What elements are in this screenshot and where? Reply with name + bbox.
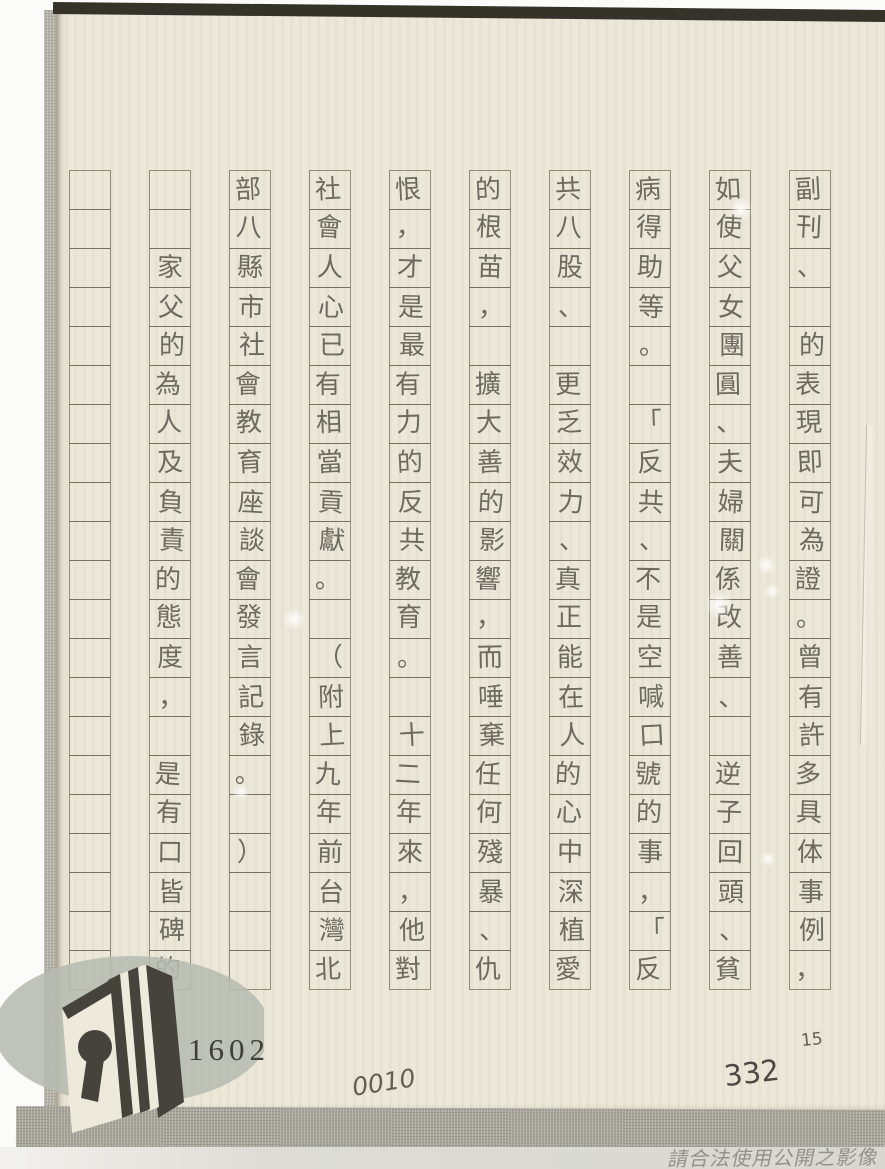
grid-cell: 任 bbox=[469, 755, 511, 795]
grid-cell: 有 bbox=[149, 794, 191, 834]
handwritten-character: 心 bbox=[318, 295, 344, 321]
grid-cell bbox=[69, 404, 111, 444]
grid-cell bbox=[149, 170, 191, 210]
handwritten-character: 發 bbox=[236, 605, 262, 631]
handwritten-character: 股 bbox=[557, 255, 584, 282]
grid-cell: ， bbox=[469, 599, 511, 639]
grid-cell: 前 bbox=[309, 833, 351, 873]
grid-cell: 共 bbox=[549, 170, 591, 210]
grid-cell: 体 bbox=[789, 833, 831, 873]
handwritten-character: 有 bbox=[315, 372, 341, 398]
handwritten-character: 現 bbox=[796, 410, 823, 437]
handwritten-character: （ bbox=[317, 645, 343, 671]
grid-cell: 、 bbox=[629, 521, 671, 561]
text-column: 社會人心已有相當貢獻。（附上九年前台灣北 bbox=[309, 170, 351, 990]
grid-cell: 、 bbox=[709, 404, 751, 444]
handwritten-character: 會 bbox=[315, 214, 342, 241]
grid-cell: 善 bbox=[709, 638, 751, 678]
handwritten-character: 事 bbox=[637, 840, 663, 866]
grid-cell: 更 bbox=[549, 365, 591, 405]
grid-cell: 十 bbox=[389, 716, 431, 756]
handwritten-character: 回 bbox=[717, 840, 743, 866]
grid-cell: 的 bbox=[149, 560, 191, 600]
grid-cell bbox=[709, 716, 751, 756]
handwritten-character: 關 bbox=[719, 528, 746, 555]
grid-cell: 許 bbox=[789, 716, 831, 756]
handwritten-character: 社 bbox=[314, 176, 341, 203]
handwritten-character: 市 bbox=[238, 295, 264, 321]
handwritten-character: 的 bbox=[799, 333, 825, 359]
grid-cell: 是 bbox=[389, 287, 431, 327]
grid-cell: ） bbox=[229, 833, 271, 873]
grid-cell: 台 bbox=[309, 872, 351, 912]
handwritten-character: 恨 bbox=[394, 176, 421, 203]
grid-cell: 逆 bbox=[709, 755, 751, 795]
handwritten-character: 婦 bbox=[717, 489, 744, 516]
grid-cell: 回 bbox=[709, 833, 751, 873]
handwritten-character: 效 bbox=[556, 449, 583, 476]
handwritten-character: 能 bbox=[557, 645, 583, 671]
grid-cell: 在 bbox=[549, 677, 591, 717]
handwritten-character: 反 bbox=[636, 449, 663, 476]
handwritten-character: 證 bbox=[795, 567, 821, 593]
grid-cell: 圓 bbox=[709, 365, 751, 405]
text-column: 病得助等。「反共、不是空喊口號的事，「反 bbox=[629, 170, 671, 990]
grid-cell bbox=[69, 755, 111, 795]
printed-number: 1602 bbox=[188, 1032, 270, 1068]
handwritten-character: 是 bbox=[636, 605, 662, 631]
grid-cell bbox=[69, 833, 111, 873]
handwritten-character: 的 bbox=[396, 449, 423, 476]
grid-cell: 乏 bbox=[549, 404, 591, 444]
handwritten-character: 得 bbox=[635, 214, 662, 241]
handwritten-character: 影 bbox=[479, 528, 506, 555]
handwritten-character: 暴 bbox=[478, 880, 504, 906]
grid-cell: 為 bbox=[789, 521, 831, 561]
grid-cell: 記 bbox=[229, 677, 271, 717]
grid-cell: 暴 bbox=[469, 872, 511, 912]
handwritten-character: 北 bbox=[315, 957, 342, 984]
grid-cell bbox=[69, 443, 111, 483]
grid-cell bbox=[309, 599, 351, 639]
handwritten-character: 根 bbox=[475, 214, 502, 241]
handwritten-character: 八 bbox=[555, 214, 582, 241]
handwritten-character: 植 bbox=[559, 918, 585, 944]
grid-cell: 社 bbox=[229, 326, 271, 366]
handwritten-character: 「 bbox=[639, 918, 665, 944]
handwritten-character: 表 bbox=[795, 372, 821, 398]
grid-cell: 有 bbox=[789, 677, 831, 717]
grid-cell: 中 bbox=[549, 833, 591, 873]
grid-cell: 愛 bbox=[549, 950, 591, 990]
handwritten-character: 仇 bbox=[475, 957, 502, 984]
handwritten-character: 八 bbox=[235, 214, 262, 241]
grid-cell: 何 bbox=[469, 794, 511, 834]
grid-cell: ， bbox=[149, 677, 191, 717]
text-column: 部八縣市社會教育座談會發言記錄。） bbox=[229, 170, 271, 990]
grid-cell bbox=[69, 326, 111, 366]
handwritten-character: 的 bbox=[636, 800, 663, 827]
handwritten-character: 乏 bbox=[556, 410, 583, 437]
grid-cell: 曾 bbox=[789, 638, 831, 678]
handwritten-character: 年 bbox=[316, 800, 343, 827]
text-column: 副刊、的表現即可為證。曾有許多具体事例， bbox=[789, 170, 831, 990]
grid-cell: 負 bbox=[149, 482, 191, 522]
grid-cell: 言 bbox=[229, 638, 271, 678]
grid-cell: 碑 bbox=[149, 911, 191, 951]
grid-cell: 「 bbox=[629, 911, 671, 951]
handwritten-character: 會 bbox=[235, 372, 261, 398]
grid-cell: 心 bbox=[309, 287, 351, 327]
handwritten-character: 「 bbox=[636, 410, 663, 437]
handwritten-character: 態 bbox=[156, 605, 182, 631]
grid-cell bbox=[789, 287, 831, 327]
grid-cell: 錄 bbox=[229, 716, 271, 756]
handwritten-character: 的 bbox=[474, 176, 501, 203]
handwritten-character: 反 bbox=[635, 957, 662, 984]
grid-cell: 、 bbox=[709, 677, 751, 717]
handwritten-character: 力 bbox=[396, 410, 423, 437]
grid-cell: 皆 bbox=[149, 872, 191, 912]
handwritten-character: 教 bbox=[236, 410, 263, 437]
grid-cell: 當 bbox=[309, 443, 351, 483]
grid-cell: 的 bbox=[629, 794, 671, 834]
handwritten-character: 二 bbox=[394, 761, 421, 788]
grid-cell: 及 bbox=[149, 443, 191, 483]
grid-cell: 談 bbox=[229, 521, 271, 561]
grid-cell: 反 bbox=[629, 443, 671, 483]
handwritten-character: 團 bbox=[719, 333, 745, 359]
grid-cell bbox=[69, 560, 111, 600]
handwritten-character: 為 bbox=[155, 372, 181, 398]
grid-cell: 善 bbox=[469, 443, 511, 483]
handwritten-character: 責 bbox=[159, 528, 186, 555]
handwritten-character: 、 bbox=[718, 685, 745, 712]
grid-cell: 女 bbox=[709, 287, 751, 327]
handwritten-character: 何 bbox=[476, 800, 503, 827]
grid-cell: 縣 bbox=[229, 248, 271, 288]
paper-stain bbox=[232, 784, 250, 800]
grid-cell: 效 bbox=[549, 443, 591, 483]
handwritten-character: 、 bbox=[479, 918, 505, 944]
grid-cell: ， bbox=[389, 209, 431, 249]
grid-cell bbox=[69, 638, 111, 678]
handwritten-character: 有 bbox=[798, 685, 825, 712]
handwritten-character: ， bbox=[158, 685, 185, 712]
grid-cell: 家 bbox=[149, 248, 191, 288]
grid-cell: 。 bbox=[389, 638, 431, 678]
grid-cell: 北 bbox=[309, 950, 351, 990]
grid-cell: 反 bbox=[389, 482, 431, 522]
grid-cell bbox=[149, 716, 191, 756]
handwritten-character: 善 bbox=[717, 645, 743, 671]
grid-cell: （ bbox=[309, 638, 351, 678]
handwritten-character: 力 bbox=[557, 489, 584, 516]
handwritten-character: 是 bbox=[154, 761, 181, 788]
grid-cell: 病 bbox=[629, 170, 671, 210]
grid-cell: 大 bbox=[469, 404, 511, 444]
handwritten-character: 縣 bbox=[237, 255, 264, 282]
handwritten-character: 年 bbox=[396, 800, 423, 827]
handwritten-character: 。 bbox=[639, 333, 665, 359]
handwritten-character: 度 bbox=[157, 645, 183, 671]
handwritten-character: 真 bbox=[555, 567, 581, 593]
handwritten-character: 係 bbox=[715, 567, 741, 593]
handwritten-character: 的 bbox=[159, 333, 185, 359]
handwritten-character: 。 bbox=[315, 567, 341, 593]
grid-cell: 空 bbox=[629, 638, 671, 678]
handwritten-character: 貢 bbox=[317, 489, 344, 516]
grid-cell: 人 bbox=[149, 404, 191, 444]
handwritten-character: 深 bbox=[558, 880, 584, 906]
grid-cell: 社 bbox=[309, 170, 351, 210]
handwritten-character: 例 bbox=[799, 918, 825, 944]
paper-stain bbox=[760, 852, 776, 866]
grid-cell: 最 bbox=[389, 326, 431, 366]
grid-cell: 苗 bbox=[469, 248, 511, 288]
handwritten-character: 談 bbox=[239, 528, 266, 555]
handwritten-character: 体 bbox=[797, 840, 823, 866]
handwritten-character: 碑 bbox=[159, 918, 185, 944]
handwritten-character: 錄 bbox=[238, 722, 265, 749]
grid-cell: 殘 bbox=[469, 833, 511, 873]
handwritten-character: 號 bbox=[634, 761, 661, 788]
handwritten-character: 夫 bbox=[716, 449, 743, 476]
grid-cell: 、 bbox=[469, 911, 511, 951]
handwritten-character: 父 bbox=[158, 295, 184, 321]
handwritten-character: 家 bbox=[157, 255, 184, 282]
handwritten-character: ， bbox=[395, 214, 422, 241]
handwritten-character: 圓 bbox=[715, 372, 741, 398]
grid-cell bbox=[69, 248, 111, 288]
handwritten-character: 、 bbox=[559, 528, 586, 555]
handwritten-number-corner: 332 bbox=[722, 1053, 781, 1093]
paper-stain bbox=[764, 584, 780, 598]
handwritten-character: 的 bbox=[554, 761, 581, 788]
grid-cell: 的 bbox=[469, 482, 511, 522]
grid-cell: 座 bbox=[229, 482, 271, 522]
grid-cell: 的 bbox=[149, 326, 191, 366]
handwritten-character: 反 bbox=[397, 489, 424, 516]
handwritten-character: 台 bbox=[318, 880, 344, 906]
grid-cell: 父 bbox=[709, 248, 751, 288]
text-column: 恨，才是最有力的反共教育。十二年來，他對 bbox=[389, 170, 431, 990]
grid-cell: 人 bbox=[549, 716, 591, 756]
handwritten-character: ） bbox=[237, 840, 263, 866]
handwritten-character: ， bbox=[476, 605, 502, 631]
grid-cell: 可 bbox=[789, 482, 831, 522]
grid-cell: 擴 bbox=[469, 365, 511, 405]
grid-cell: 刊 bbox=[789, 209, 831, 249]
handwritten-character: 口 bbox=[157, 840, 183, 866]
handwritten-character: 他 bbox=[399, 918, 425, 944]
grid-cell: 有 bbox=[389, 365, 431, 405]
handwritten-character: 十 bbox=[398, 722, 425, 749]
handwritten-character: 當 bbox=[316, 449, 343, 476]
handwritten-character: 在 bbox=[558, 685, 585, 712]
handwritten-character: 座 bbox=[237, 489, 264, 516]
handwritten-character: 棄 bbox=[478, 722, 505, 749]
grid-cell: 年 bbox=[309, 794, 351, 834]
handwritten-character: 九 bbox=[314, 761, 341, 788]
grid-cell bbox=[69, 521, 111, 561]
grid-cell: 助 bbox=[629, 248, 671, 288]
grid-cell bbox=[69, 482, 111, 522]
grid-cell: 關 bbox=[709, 521, 751, 561]
handwritten-character: 是 bbox=[398, 295, 424, 321]
grid-cell: 能 bbox=[549, 638, 591, 678]
grid-cell: 八 bbox=[549, 209, 591, 249]
handwritten-character: 為 bbox=[799, 528, 826, 555]
grid-cell bbox=[69, 911, 111, 951]
grid-cell: 育 bbox=[389, 599, 431, 639]
handwritten-character: 、 bbox=[558, 295, 584, 321]
handwritten-character: ， bbox=[795, 957, 822, 984]
handwritten-character: 最 bbox=[399, 333, 425, 359]
handwritten-character: 才 bbox=[397, 255, 424, 282]
grid-cell: 具 bbox=[789, 794, 831, 834]
grid-cell: 根 bbox=[469, 209, 511, 249]
handwritten-character: 大 bbox=[476, 410, 503, 437]
handwritten-character: 。 bbox=[397, 645, 423, 671]
grid-cell: 共 bbox=[389, 521, 431, 561]
handwritten-character: 共 bbox=[637, 489, 664, 516]
handwritten-character: 心 bbox=[556, 800, 583, 827]
grid-cell bbox=[469, 326, 511, 366]
grid-cell: 團 bbox=[709, 326, 751, 366]
handwritten-character: 及 bbox=[156, 449, 183, 476]
grid-cell: ， bbox=[789, 950, 831, 990]
handwritten-character: 共 bbox=[399, 528, 426, 555]
grid-cell: 來 bbox=[389, 833, 431, 873]
grid-cell: 影 bbox=[469, 521, 511, 561]
grid-cell: 的 bbox=[549, 755, 591, 795]
handwritten-character: ， bbox=[398, 880, 424, 906]
handwritten-character: 父 bbox=[717, 255, 744, 282]
grid-cell: 年 bbox=[389, 794, 431, 834]
handwritten-character: 社 bbox=[239, 333, 265, 359]
grid-cell: 恨 bbox=[389, 170, 431, 210]
grid-cell: 他 bbox=[389, 911, 431, 951]
grid-cell bbox=[69, 365, 111, 405]
grid-cell: 力 bbox=[389, 404, 431, 444]
grid-cell: 教 bbox=[389, 560, 431, 600]
handwritten-character: 不 bbox=[635, 567, 661, 593]
grid-cell: 不 bbox=[629, 560, 671, 600]
grid-cell bbox=[229, 872, 271, 912]
handwritten-character: 記 bbox=[238, 685, 265, 712]
grid-cell: 、 bbox=[709, 911, 751, 951]
handwritten-character: 共 bbox=[554, 176, 581, 203]
handwritten-character: 更 bbox=[555, 372, 581, 398]
grid-cell: 棄 bbox=[469, 716, 511, 756]
handwritten-character: 多 bbox=[794, 761, 821, 788]
handwritten-character: ， bbox=[638, 880, 664, 906]
handwritten-character: 中 bbox=[557, 840, 583, 866]
grid-cell: 副 bbox=[789, 170, 831, 210]
grid-cell: 口 bbox=[149, 833, 191, 873]
grid-cell: 而 bbox=[469, 638, 511, 678]
handwritten-character: 逆 bbox=[714, 761, 741, 788]
grid-cell: 。 bbox=[309, 560, 351, 600]
grid-cell: 「 bbox=[629, 404, 671, 444]
grid-cell: 、 bbox=[549, 287, 591, 327]
grid-cell: 子 bbox=[709, 794, 751, 834]
paper-stain bbox=[282, 608, 306, 630]
handwritten-character: 刊 bbox=[795, 214, 822, 241]
handwritten-character: 對 bbox=[395, 957, 422, 984]
handwritten-character: 育 bbox=[396, 605, 422, 631]
grid-cell: 已 bbox=[309, 326, 351, 366]
grid-cell: 為 bbox=[149, 365, 191, 405]
grid-cell: 度 bbox=[149, 638, 191, 678]
text-column: 如使父女團圓、夫婦關係改善、逆子回頭、貧 bbox=[709, 170, 751, 990]
grid-cell bbox=[69, 170, 111, 210]
paper-stain bbox=[704, 592, 734, 618]
grid-cell: 會 bbox=[229, 560, 271, 600]
grid-cell: 育 bbox=[229, 443, 271, 483]
grid-cell: 貧 bbox=[709, 950, 751, 990]
handwritten-number-small: 15 bbox=[800, 1029, 824, 1051]
handwritten-character: 子 bbox=[716, 800, 743, 827]
grid-cell bbox=[69, 209, 111, 249]
grid-cell bbox=[629, 365, 671, 405]
grid-cell: ， bbox=[629, 872, 671, 912]
handwritten-character: 的 bbox=[477, 489, 504, 516]
handwritten-character: 人 bbox=[317, 255, 344, 282]
handwritten-character: 助 bbox=[637, 255, 664, 282]
handwritten-character: 、 bbox=[716, 410, 743, 437]
grid-cell: 態 bbox=[149, 599, 191, 639]
grid-cell bbox=[149, 209, 191, 249]
handwritten-character: 部 bbox=[234, 176, 261, 203]
grid-cell: 二 bbox=[389, 755, 431, 795]
handwritten-character: 等 bbox=[638, 295, 664, 321]
grid-cell: 部 bbox=[229, 170, 271, 210]
handwritten-character: 任 bbox=[474, 761, 501, 788]
grid-cell: 夫 bbox=[709, 443, 751, 483]
grid-cell: 現 bbox=[789, 404, 831, 444]
handwritten-character: 會 bbox=[235, 567, 261, 593]
grid-cell: 。 bbox=[789, 599, 831, 639]
grid-cell: 植 bbox=[549, 911, 591, 951]
handwritten-character: 灣 bbox=[319, 918, 345, 944]
handwritten-character: 附 bbox=[318, 685, 345, 712]
grid-cell: 等 bbox=[629, 287, 671, 327]
grid-cell bbox=[549, 326, 591, 366]
handwritten-character: 、 bbox=[719, 918, 745, 944]
handwritten-character: 喊 bbox=[638, 685, 665, 712]
grid-cell: 號 bbox=[629, 755, 671, 795]
grid-cell: 得 bbox=[629, 209, 671, 249]
grid-cell bbox=[69, 677, 111, 717]
grid-cell: 真 bbox=[549, 560, 591, 600]
handwritten-character: 女 bbox=[718, 295, 744, 321]
grid-cell: 仇 bbox=[469, 950, 511, 990]
handwritten-character: 唾 bbox=[478, 685, 505, 712]
handwritten-character: 負 bbox=[157, 489, 184, 516]
grid-cell: 九 bbox=[309, 755, 351, 795]
grid-cell: 發 bbox=[229, 599, 271, 639]
grid-cell bbox=[229, 911, 271, 951]
grid-cell: 對 bbox=[389, 950, 431, 990]
copyright-watermark: 請合法使用公開之影像 bbox=[666, 1141, 882, 1169]
grid-cell: 事 bbox=[629, 833, 671, 873]
grid-cell: ， bbox=[469, 287, 511, 327]
grid-cell: 深 bbox=[549, 872, 591, 912]
grid-cell: 表 bbox=[789, 365, 831, 405]
grid-cell bbox=[69, 287, 111, 327]
